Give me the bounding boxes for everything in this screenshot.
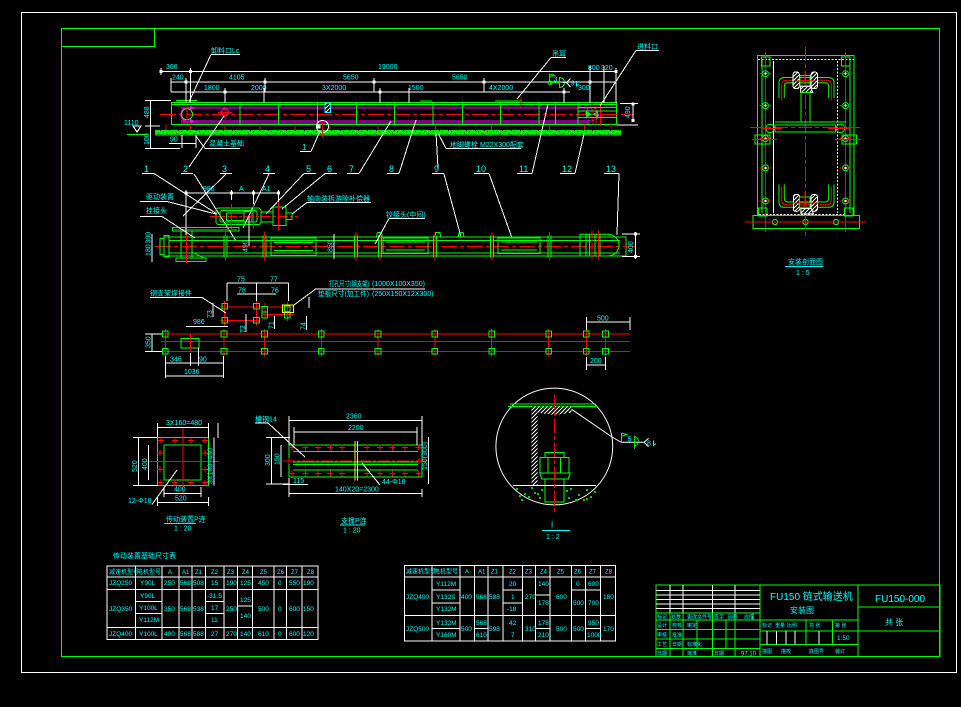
svg-text:Z7: Z7 [291, 570, 299, 576]
svg-text:520: 520 [132, 460, 139, 472]
svg-text:Z8: Z8 [307, 570, 315, 576]
svg-text:共 张: 共 张 [885, 618, 903, 627]
svg-text:签字: 签字 [714, 614, 724, 621]
svg-text:Z7: Z7 [589, 570, 597, 576]
svg-text:500: 500 [556, 626, 567, 633]
svg-text:Z4: Z4 [242, 570, 250, 576]
svg-text:490: 490 [243, 240, 250, 252]
svg-text:1:50: 1:50 [837, 635, 850, 642]
svg-text:600: 600 [289, 631, 300, 638]
svg-text:安装剖面图: 安装剖面图 [788, 257, 823, 266]
svg-text:Y90L: Y90L [140, 580, 156, 587]
svg-text:42: 42 [509, 620, 517, 627]
svg-text:Z6: Z6 [277, 570, 285, 576]
svg-text:0: 0 [576, 581, 580, 588]
svg-text:78: 78 [238, 288, 246, 295]
svg-text:9: 9 [571, 81, 575, 88]
svg-text:90: 90 [170, 137, 178, 144]
svg-text:3X2000: 3X2000 [322, 85, 346, 92]
svg-text:铰接头(中间): 铰接头(中间) [386, 210, 426, 219]
svg-text:A: A [168, 570, 172, 576]
svg-text:610: 610 [476, 632, 487, 639]
svg-text:驱动装置: 驱动装置 [146, 192, 174, 201]
svg-text:598: 598 [489, 626, 500, 633]
svg-text:Z6: Z6 [574, 570, 582, 576]
svg-text:0: 0 [278, 580, 282, 587]
svg-text:装订: 装订 [835, 648, 845, 655]
svg-text:共 张: 共 张 [809, 622, 820, 629]
svg-text:2200: 2200 [348, 425, 364, 432]
svg-text:240: 240 [172, 75, 184, 82]
svg-text:A: A [465, 570, 469, 576]
svg-text:-18: -18 [507, 606, 517, 613]
svg-text:8: 8 [389, 164, 394, 174]
svg-text:A: A [239, 186, 244, 193]
svg-text:12: 12 [562, 164, 572, 174]
svg-text:10: 10 [476, 164, 486, 174]
svg-text:1 : 2: 1 : 2 [546, 534, 560, 541]
svg-text:(250X150X12X300): (250X150X12X300) [372, 291, 434, 298]
svg-text:568: 568 [180, 631, 191, 638]
svg-text:538: 538 [193, 606, 204, 613]
svg-text:250: 250 [226, 606, 237, 613]
svg-text:115: 115 [293, 478, 304, 485]
svg-text:3X160=480: 3X160=480 [208, 448, 215, 484]
svg-text:白描: 白描 [744, 614, 754, 621]
svg-text:Y112M: Y112M [436, 581, 456, 588]
svg-text:19000: 19000 [378, 64, 398, 71]
svg-text:170: 170 [603, 626, 614, 633]
svg-text:A1: A1 [262, 186, 271, 193]
svg-text:97.10: 97.10 [741, 652, 757, 658]
svg-text:120: 120 [303, 631, 314, 638]
svg-text:描图: 描图 [762, 648, 772, 655]
svg-text:Y90L: Y90L [140, 593, 156, 600]
svg-text:-31.5: -31.5 [207, 593, 222, 600]
svg-text:140: 140 [240, 613, 251, 620]
svg-text:346: 346 [170, 357, 182, 364]
svg-text:5: 5 [628, 437, 632, 444]
svg-text:588: 588 [489, 594, 500, 601]
svg-text:吊耳: 吊耳 [552, 50, 566, 58]
svg-text:Y100L: Y100L [139, 605, 158, 612]
svg-text:传动装置P连: 传动装置P连 [166, 515, 206, 524]
svg-text:15: 15 [211, 580, 219, 587]
svg-text:150(300): 150(300) [422, 442, 429, 470]
svg-text:77: 77 [270, 277, 278, 284]
svg-text:安装图: 安装图 [790, 605, 814, 615]
svg-text:4105: 4105 [229, 75, 245, 82]
svg-text:1 : 20: 1 : 20 [343, 528, 361, 535]
svg-text:A1: A1 [182, 570, 190, 576]
svg-text:76: 76 [271, 288, 279, 295]
svg-text:270: 270 [525, 594, 536, 601]
svg-text:日期: 日期 [672, 642, 682, 648]
svg-text:FU150 链式输送机: FU150 链式输送机 [770, 590, 853, 603]
svg-text:12-Φ18: 12-Φ18 [128, 498, 152, 505]
svg-text:1500: 1500 [408, 85, 424, 92]
svg-text:1036: 1036 [184, 369, 200, 376]
svg-text:底图号: 底图号 [809, 648, 824, 655]
svg-text:处数: 处数 [671, 614, 681, 621]
svg-text:200: 200 [590, 358, 602, 365]
svg-text:400: 400 [461, 594, 472, 601]
svg-text:300: 300 [146, 232, 153, 244]
svg-text:150: 150 [303, 606, 314, 613]
svg-text:1 : 5: 1 : 5 [796, 270, 810, 277]
svg-text:第 张: 第 张 [835, 622, 846, 629]
svg-text:混凝土基础: 混凝土基础 [209, 139, 244, 148]
svg-text:320: 320 [601, 65, 613, 72]
svg-text:I: I [551, 521, 553, 530]
svg-text:250: 250 [164, 580, 175, 587]
svg-text:Z8: Z8 [605, 570, 613, 576]
svg-text:11: 11 [519, 164, 528, 174]
svg-text:850: 850 [328, 240, 335, 252]
svg-text:3X160=480: 3X160=480 [166, 420, 202, 427]
svg-text:JZQ250: JZQ250 [109, 580, 133, 587]
svg-text:180: 180 [146, 244, 153, 256]
svg-text:Z3: Z3 [227, 570, 235, 576]
svg-text:Z5: Z5 [557, 570, 565, 576]
svg-text:610: 610 [258, 631, 269, 638]
svg-text:Z5: Z5 [260, 570, 268, 576]
svg-text:进料口: 进料口 [637, 42, 658, 51]
svg-text:A1: A1 [478, 570, 486, 576]
svg-text:7: 7 [511, 632, 515, 639]
svg-text:450: 450 [258, 580, 269, 587]
svg-text:3: 3 [554, 77, 558, 84]
svg-text:Y132M: Y132M [436, 620, 457, 627]
svg-text:批准: 批准 [687, 650, 697, 657]
svg-text:13: 13 [606, 164, 616, 174]
svg-text:17: 17 [211, 605, 219, 612]
svg-text:Y100L: Y100L [139, 631, 158, 638]
svg-text:3: 3 [222, 164, 227, 174]
svg-text:电机型号: 电机型号 [137, 568, 161, 576]
svg-text:700: 700 [588, 600, 599, 607]
svg-text:0: 0 [278, 606, 282, 613]
svg-text:2360: 2360 [346, 414, 362, 421]
svg-text:400: 400 [628, 241, 635, 253]
svg-text:减速机型号: 减速机型号 [109, 568, 139, 576]
svg-text:490: 490 [625, 106, 632, 118]
svg-text:日期: 日期 [657, 651, 667, 657]
svg-text:Y112M: Y112M [139, 617, 159, 624]
svg-text:350: 350 [164, 606, 175, 613]
svg-text:审核: 审核 [657, 632, 667, 639]
svg-text:7: 7 [349, 164, 354, 174]
svg-text:4: 4 [265, 164, 270, 174]
svg-text:44-Φ18: 44-Φ18 [382, 479, 406, 486]
svg-text:(1000X100X350): (1000X100X350) [372, 281, 425, 288]
svg-text:槽钢14: 槽钢14 [255, 415, 277, 424]
svg-text:JZQ500: JZQ500 [406, 626, 430, 633]
svg-text:支撑P连: 支撑P连 [341, 516, 367, 525]
svg-text:986: 986 [203, 186, 215, 193]
svg-text:0: 0 [278, 631, 282, 638]
svg-text:500: 500 [258, 606, 269, 613]
svg-text:日期: 日期 [727, 615, 737, 621]
svg-text:1: 1 [144, 164, 149, 174]
svg-text:950: 950 [588, 620, 599, 627]
svg-text:传动装置基础尺寸表: 传动装置基础尺寸表 [113, 551, 176, 560]
svg-text:300: 300 [265, 454, 272, 466]
svg-text:400: 400 [164, 631, 175, 638]
svg-text:JZQ400: JZQ400 [406, 594, 430, 601]
svg-text:5: 5 [306, 164, 311, 174]
svg-text:190: 190 [303, 580, 314, 587]
svg-text:140X20=2300: 140X20=2300 [335, 487, 379, 494]
svg-text:Z2: Z2 [509, 570, 517, 576]
svg-text:400: 400 [142, 458, 149, 470]
svg-text:178: 178 [538, 620, 549, 627]
svg-text:更改文件号: 更改文件号 [687, 614, 712, 621]
svg-text:27: 27 [211, 631, 219, 638]
svg-text:Z4: Z4 [540, 570, 548, 576]
svg-text:校核: 校核 [672, 622, 682, 629]
svg-text:600: 600 [556, 594, 567, 601]
svg-text:电机型号: 电机型号 [434, 568, 458, 576]
svg-text:Y132S: Y132S [436, 594, 456, 601]
svg-text:500: 500 [461, 626, 472, 633]
svg-text:5650: 5650 [452, 75, 468, 82]
svg-text:125: 125 [240, 580, 251, 587]
svg-text:500: 500 [573, 600, 584, 607]
svg-text:400: 400 [174, 487, 186, 494]
svg-text:20: 20 [509, 581, 517, 588]
svg-text:1800: 1800 [204, 85, 220, 92]
svg-text:500: 500 [573, 626, 584, 633]
svg-text:568: 568 [476, 594, 487, 601]
svg-text:JZQ350: JZQ350 [109, 606, 133, 613]
svg-text:500: 500 [597, 316, 609, 323]
svg-text:4X2000: 4X2000 [489, 85, 513, 92]
svg-text:350: 350 [146, 336, 153, 348]
svg-text:180: 180 [603, 594, 614, 601]
svg-text:488: 488 [144, 106, 151, 118]
svg-text:1: 1 [302, 143, 307, 152]
svg-text:568: 568 [180, 580, 191, 587]
svg-text:520: 520 [175, 496, 187, 503]
svg-text:140: 140 [538, 581, 549, 588]
svg-text:508: 508 [193, 580, 204, 587]
svg-text:批准: 批准 [672, 632, 682, 639]
svg-text:Y132M: Y132M [436, 606, 457, 613]
svg-text:垫板尺寸(加工件): 垫板尺寸(加工件) [318, 289, 369, 298]
svg-text:钢支架焊接件: 钢支架焊接件 [150, 289, 192, 298]
svg-text:标准化: 标准化 [687, 641, 702, 648]
svg-text:310: 310 [525, 626, 536, 633]
svg-text:1000: 1000 [587, 632, 602, 639]
svg-text:1 : 20: 1 : 20 [174, 526, 192, 533]
svg-text:210: 210 [538, 632, 549, 639]
svg-text:366: 366 [166, 64, 178, 71]
svg-text:Z1: Z1 [195, 570, 203, 576]
svg-text:Y160M: Y160M [436, 632, 457, 639]
svg-text:标记: 标记 [657, 614, 667, 621]
svg-text:568: 568 [180, 606, 191, 613]
svg-text:568: 568 [476, 620, 487, 627]
svg-text:减速机型号: 减速机型号 [406, 568, 436, 576]
svg-text:986: 986 [193, 319, 205, 326]
svg-text:178: 178 [538, 600, 549, 607]
svg-text:挂接头: 挂接头 [146, 206, 167, 215]
svg-text:125: 125 [240, 597, 251, 604]
svg-text:5650: 5650 [343, 75, 359, 82]
svg-text:300: 300 [578, 85, 590, 92]
svg-text:8: 8 [647, 441, 651, 448]
svg-text:JZQ400: JZQ400 [109, 631, 133, 638]
svg-text:卸料口Lc: 卸料口Lc [211, 46, 240, 55]
svg-text:75: 75 [237, 277, 245, 284]
svg-text:6: 6 [327, 164, 332, 174]
svg-text:2: 2 [183, 164, 188, 174]
svg-text:Z1: Z1 [491, 570, 499, 576]
svg-text:550: 550 [289, 580, 300, 587]
svg-text:90: 90 [199, 357, 207, 364]
svg-text:审定: 审定 [687, 622, 697, 629]
svg-text:地脚螺栓 M22X300配套: 地脚螺栓 M22X300配套 [450, 140, 524, 149]
svg-text:Z3: Z3 [525, 570, 533, 576]
svg-text:Z2: Z2 [211, 570, 219, 576]
svg-text:588: 588 [193, 631, 204, 638]
svg-text:270: 270 [226, 631, 237, 638]
svg-text:比例: 比例 [787, 622, 797, 629]
svg-text:设计: 设计 [657, 622, 667, 629]
svg-text:600: 600 [588, 581, 599, 588]
svg-text:1: 1 [511, 594, 515, 601]
svg-text:FU150-000: FU150-000 [875, 594, 925, 605]
svg-text:150: 150 [275, 453, 282, 465]
svg-text:重量: 重量 [775, 622, 785, 629]
svg-text:140: 140 [240, 631, 251, 638]
svg-text:工艺: 工艺 [657, 642, 667, 648]
svg-text:打孔尺寸(钢支架): 打孔尺寸(钢支架) [329, 279, 369, 288]
svg-text:标记: 标记 [762, 622, 772, 629]
svg-text:日期: 日期 [714, 651, 724, 657]
svg-text:11: 11 [211, 617, 218, 624]
svg-text:描校: 描校 [781, 648, 791, 655]
svg-text:600: 600 [289, 606, 300, 613]
svg-text:轴向装拆游隙补偿器: 轴向装拆游隙补偿器 [307, 194, 370, 203]
svg-text:190: 190 [226, 580, 237, 587]
